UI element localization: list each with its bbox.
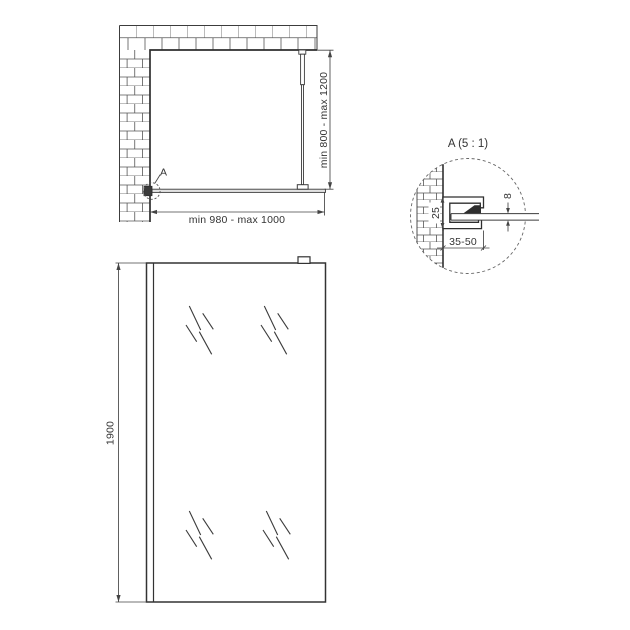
mount-depth-dimension-label: 35-50 [449, 236, 477, 248]
wall-profile-plan [144, 186, 152, 195]
front-view: 1900 [105, 257, 326, 602]
support-bar-bracket [299, 50, 306, 54]
mount-depth-dimension: 35-50 [437, 231, 490, 251]
height-dimension-label: min 800 - max 1200 [318, 72, 330, 168]
detail-marker-label: A [160, 167, 167, 179]
top-view: A min 980 - max 1000 min 800 - max 1200 [120, 26, 334, 226]
support-bar-rod [302, 85, 304, 185]
profile-height-dimension-label: 25 [430, 207, 442, 219]
support-bar [297, 50, 308, 189]
support-bar-connector [298, 257, 310, 264]
detail-view-title: A (5 : 1) [448, 138, 488, 150]
width-dimension-label: min 980 - max 1000 [189, 214, 285, 226]
brick-wall-top [120, 26, 318, 51]
glass-thickness-dimension: 8 [502, 193, 514, 232]
support-bar-clamp [297, 185, 308, 190]
glass-panel-front [147, 263, 326, 602]
drawing-canvas: A min 980 - max 1000 min 800 - max 1200 [0, 0, 630, 630]
glass-thickness-dimension-label: 8 [502, 193, 514, 199]
clamp-wedge [464, 205, 482, 213]
detail-view: A (5 : 1) 25 8 [411, 138, 540, 274]
technical-drawing: A min 980 - max 1000 min 800 - max 1200 [0, 0, 630, 630]
width-dimension: min 980 - max 1000 [150, 192, 325, 225]
height-dimension: min 800 - max 1200 [317, 50, 334, 189]
glass-section [451, 214, 539, 221]
wall-inner-faces [150, 50, 317, 222]
front-height-dimension: 1900 [105, 263, 147, 602]
front-height-dimension-label: 1900 [105, 421, 117, 445]
support-bar-sleeve [301, 54, 305, 84]
